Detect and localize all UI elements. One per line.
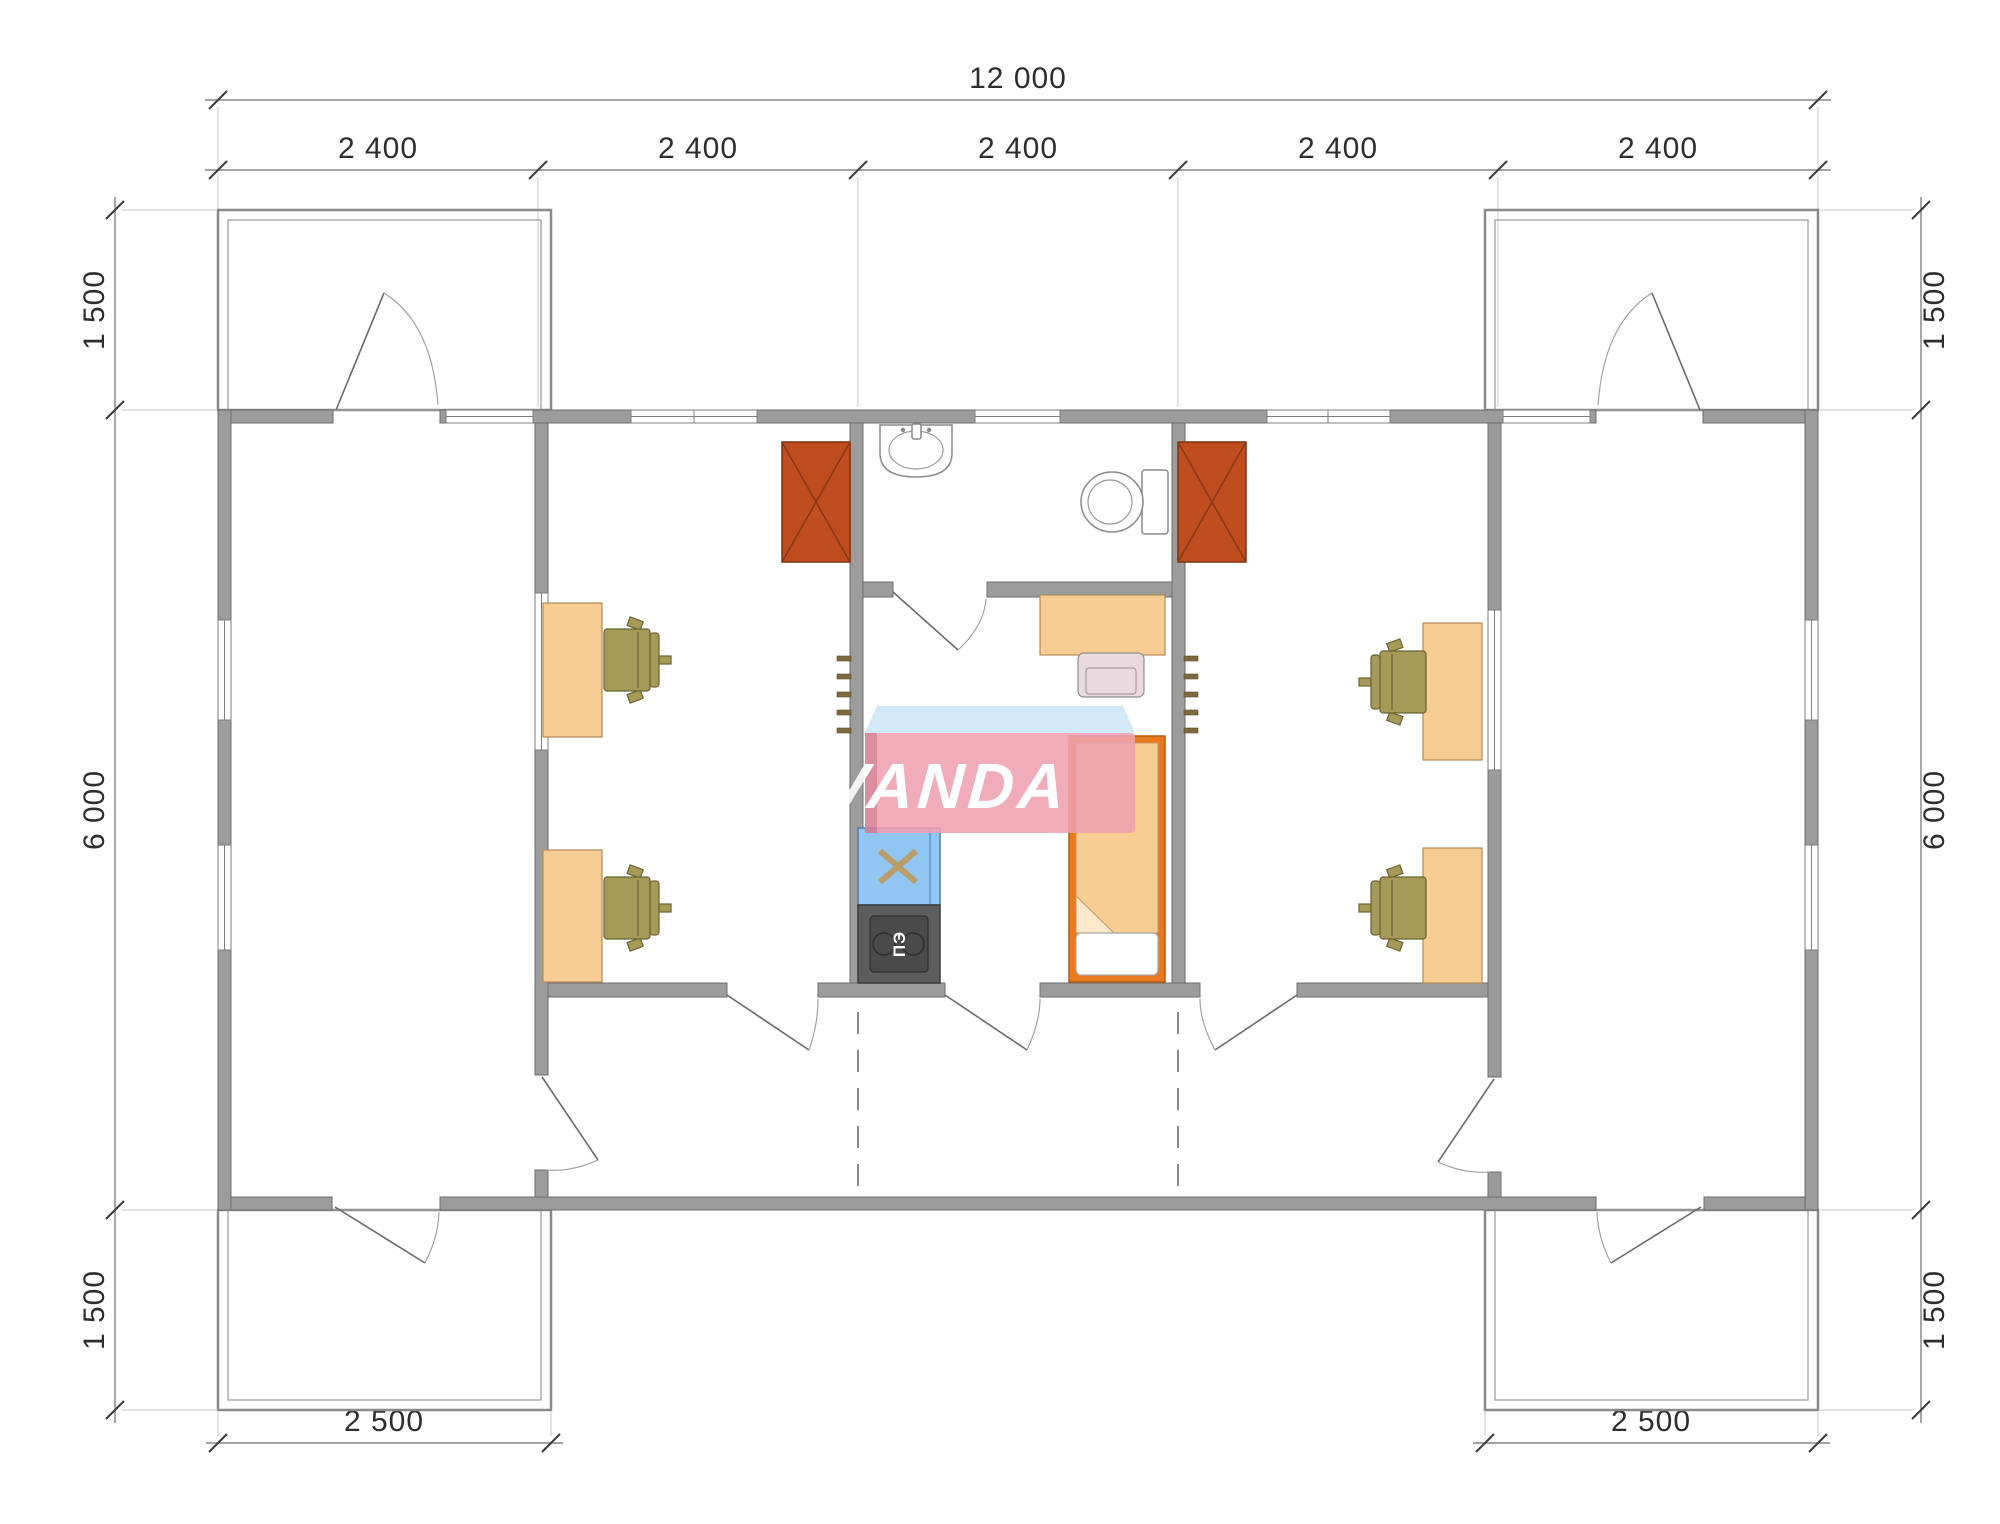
floor-plan-svg: 12 000 2 400 2 400 2 400 2 400 2 400 1 5… (0, 0, 2000, 1524)
wall-segment (440, 1197, 1596, 1210)
wall-segment (218, 410, 231, 620)
wall-segment (1805, 720, 1818, 845)
wall-segment (1060, 410, 1267, 423)
window (218, 845, 231, 950)
wall-segment (1297, 983, 1488, 997)
corridor-dashed-lines (858, 1012, 1178, 1192)
wall-segment (548, 983, 727, 997)
coat-hooks-left (837, 656, 851, 733)
office-chair (604, 617, 671, 703)
terrace-bottom-left (218, 1210, 551, 1410)
wall-segment (1488, 770, 1501, 1077)
dim-right-porch-top: 1 500 (1918, 270, 1951, 350)
office-chair (1359, 639, 1426, 725)
kitchen-sink-counter (858, 828, 940, 905)
wall-segment (818, 983, 945, 997)
wall-segment (1805, 410, 1818, 620)
window (631, 410, 757, 423)
bedroom-desk (1040, 595, 1165, 655)
window (1805, 845, 1818, 950)
dim-right-porch-bottom: 1 500 (1918, 1270, 1951, 1350)
terrace-top-right (1485, 210, 1818, 410)
wall-segment (218, 950, 231, 1210)
dim-total-width: 12 000 (969, 62, 1067, 95)
wall-segment (1704, 1197, 1818, 1210)
office-chair (1359, 865, 1426, 951)
windows (218, 410, 1818, 950)
window (218, 620, 231, 720)
window (1488, 610, 1501, 770)
door-kitchen-room (945, 995, 1040, 1050)
door-office-left (727, 995, 818, 1050)
coat-hooks-right (1184, 656, 1198, 733)
wardrobe-right (1178, 442, 1246, 562)
door-terrace-top-right (1598, 293, 1700, 410)
desk (543, 603, 602, 737)
door-terrace-top-left (336, 293, 438, 410)
dim-bay-3: 2 400 (978, 132, 1058, 165)
wall-segment (863, 582, 893, 597)
wall-segment (533, 410, 631, 423)
dim-left-body: 6 000 (78, 770, 111, 850)
dim-bay-2: 2 400 (658, 132, 738, 165)
wall-segment (218, 1197, 332, 1210)
window (975, 410, 1060, 423)
floor-plan-page: 12 000 2 400 2 400 2 400 2 400 2 400 1 5… (0, 0, 2000, 1524)
desk (543, 850, 602, 982)
door-hall-right (1438, 1079, 1494, 1172)
wall-segment (1590, 410, 1596, 423)
window (1267, 410, 1390, 423)
dim-bay-5: 2 400 (1618, 132, 1698, 165)
wardrobe-left (782, 442, 850, 562)
dim-bay-4: 2 400 (1298, 132, 1378, 165)
dim-left-porch-bottom: 1 500 (78, 1270, 111, 1350)
watermark: VANDA (823, 706, 1135, 833)
electric-stove: ПЭ (858, 905, 940, 983)
wall-segment (1040, 983, 1200, 997)
office-chair (604, 865, 671, 951)
dim-left-porch-top: 1 500 (78, 270, 111, 350)
wall-segment (218, 720, 231, 845)
bedroom-chair (1078, 653, 1144, 697)
wall-segment (1488, 1172, 1501, 1197)
wall-segment (535, 1170, 548, 1197)
wall-segment (1390, 410, 1503, 423)
furniture: ПЭ (543, 424, 1482, 983)
door-office-right (1200, 995, 1297, 1050)
wall-segment (1703, 410, 1818, 423)
watermark-top-face (865, 706, 1135, 733)
dim-bay-1: 2 400 (338, 132, 418, 165)
door-hall-left (542, 1077, 598, 1170)
wall-segment (535, 423, 548, 593)
faucet-icon (912, 424, 921, 439)
wall-segment (757, 410, 975, 423)
desk (1423, 623, 1482, 760)
toilet (1081, 470, 1168, 534)
wall-segment (1805, 950, 1818, 1210)
wall-segment (218, 410, 333, 423)
desk (1423, 848, 1482, 983)
pillow (1076, 933, 1158, 975)
terrace-bottom-right (1485, 1210, 1818, 1410)
stove-label: ПЭ (890, 931, 909, 957)
door-terrace-bottom-left (335, 1207, 439, 1263)
dim-right-body: 6 000 (1918, 770, 1951, 850)
wall-segment (1488, 423, 1501, 610)
door-terrace-bottom-right (1597, 1207, 1701, 1263)
window (446, 410, 533, 423)
bathroom-sink (880, 424, 952, 477)
watermark-text: VANDA (823, 750, 1071, 822)
terrace-top-left (218, 210, 551, 410)
window (1805, 620, 1818, 720)
wall-segment (440, 410, 446, 423)
door-wc (893, 592, 986, 650)
window (1503, 410, 1590, 423)
